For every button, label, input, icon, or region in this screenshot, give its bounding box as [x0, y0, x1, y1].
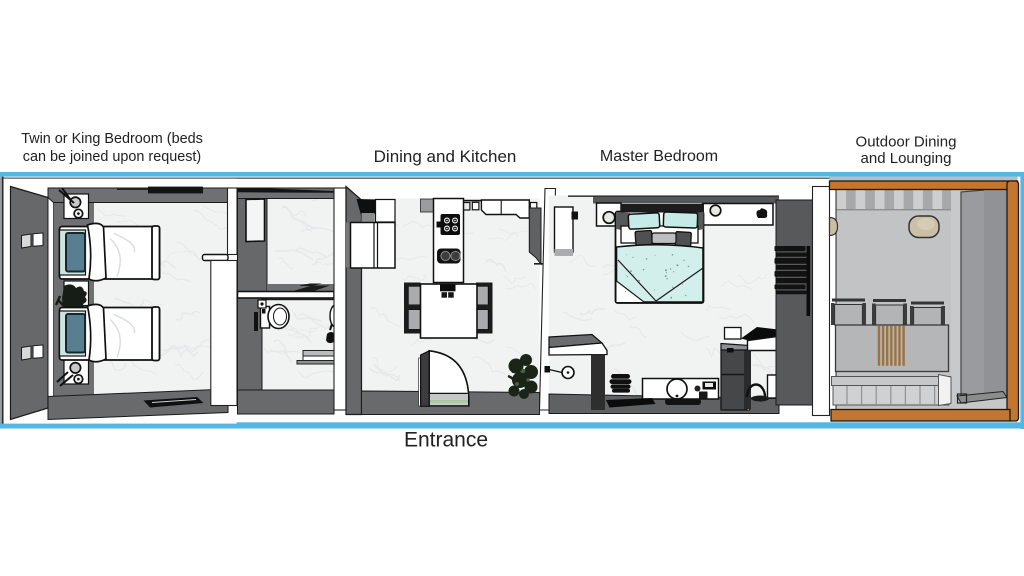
svg-text:Dining and Kitchen: Dining and Kitchen	[374, 147, 517, 166]
svg-text:can be joined upon request): can be joined upon request)	[23, 149, 201, 165]
svg-text:Outdoor Dining: Outdoor Dining	[856, 134, 957, 151]
svg-text:Twin or King Bedroom (beds: Twin or King Bedroom (beds	[21, 131, 203, 147]
svg-text:Master Bedroom: Master Bedroom	[600, 148, 718, 165]
svg-text:Entrance: Entrance	[404, 429, 488, 452]
svg-text:and Lounging: and Lounging	[861, 150, 952, 167]
